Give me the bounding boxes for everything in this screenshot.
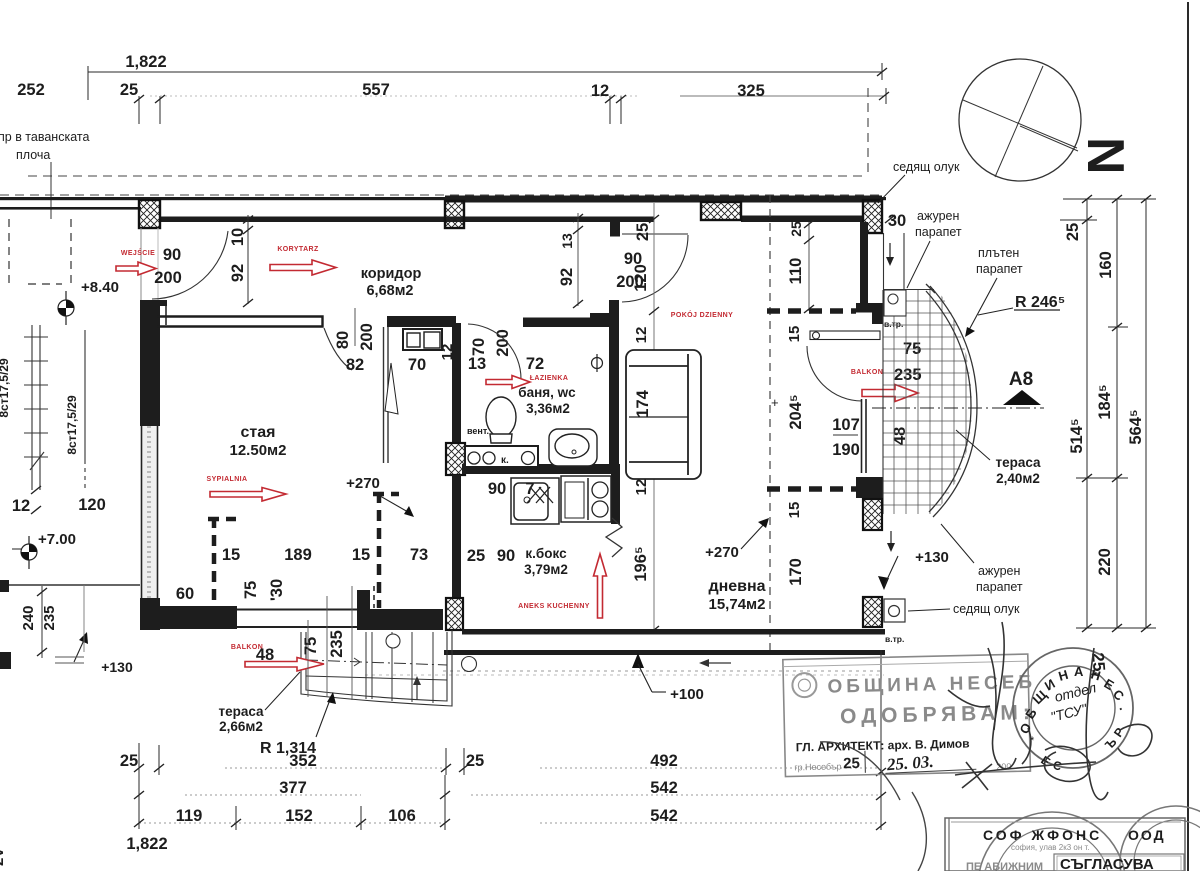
svg-text:25: 25: [120, 752, 138, 770]
svg-text:к.бокс: к.бокс: [525, 546, 567, 561]
svg-text:240: 240: [20, 605, 37, 630]
svg-text:коридор: коридор: [361, 266, 422, 282]
svg-text:120: 120: [78, 496, 106, 514]
svg-text:220: 220: [1096, 548, 1114, 576]
svg-text:200: 200: [154, 269, 182, 287]
svg-text:1,822: 1,822: [126, 835, 167, 853]
svg-text:ООД: ООД: [1128, 827, 1166, 843]
svg-text:160: 160: [1097, 251, 1115, 279]
svg-text:SYPIALNIA: SYPIALNIA: [207, 476, 248, 483]
svg-text:204⁵: 204⁵: [787, 394, 805, 429]
svg-text:8ст17,5/29: 8ст17,5/29: [0, 358, 11, 418]
svg-text:3,79м2: 3,79м2: [524, 562, 568, 577]
svg-text:90: 90: [488, 480, 506, 498]
svg-text:352: 352: [289, 752, 317, 770]
svg-text:15: 15: [352, 546, 370, 564]
svg-text:+: +: [771, 395, 779, 410]
svg-text:542: 542: [650, 779, 678, 797]
svg-text:13: 13: [559, 233, 575, 249]
svg-text:СЪГЛАСУВА: СЪГЛАСУВА: [1060, 856, 1154, 871]
svg-text:парапет: парапет: [915, 225, 962, 239]
svg-text:12: 12: [439, 344, 456, 361]
svg-text:+8.40: +8.40: [81, 279, 119, 296]
svg-text:ŁAZIENKA: ŁAZIENKA: [530, 375, 569, 382]
svg-text:120: 120: [632, 264, 650, 292]
svg-text:тераса: тераса: [995, 455, 1041, 470]
svg-text:557: 557: [362, 81, 390, 99]
svg-text:стая: стая: [241, 424, 276, 441]
svg-text:106: 106: [388, 807, 416, 825]
svg-text:542: 542: [650, 807, 678, 825]
svg-text:2,66м2: 2,66м2: [219, 719, 263, 734]
svg-text:тераса: тераса: [218, 704, 264, 719]
svg-text:73: 73: [410, 546, 428, 564]
svg-text:25: 25: [634, 223, 652, 241]
svg-text:парапет: парапет: [976, 580, 1023, 594]
svg-text:2,40м2: 2,40м2: [996, 471, 1040, 486]
svg-text:WEJŚCIE: WEJŚCIE: [121, 248, 155, 257]
svg-text:вент.: вент.: [467, 426, 489, 436]
svg-text:174: 174: [634, 389, 652, 417]
svg-text:377: 377: [279, 779, 307, 797]
svg-text:75: 75: [302, 637, 320, 655]
svg-text:252: 252: [17, 81, 45, 99]
svg-text:15: 15: [222, 546, 240, 564]
svg-text:R 246⁵: R 246⁵: [1015, 294, 1065, 311]
svg-text:СОФ ЖФОНС: СОФ ЖФОНС: [983, 827, 1102, 843]
svg-text:баня, wc: баня, wc: [518, 385, 576, 400]
svg-text:325: 325: [737, 82, 765, 100]
svg-text:70: 70: [408, 356, 426, 374]
svg-text:POKÓJ DZIENNY: POKÓJ DZIENNY: [671, 310, 733, 319]
svg-text:12.50м2: 12.50м2: [230, 442, 287, 459]
svg-text:А: А: [1074, 664, 1084, 679]
svg-text:196⁵: 196⁵: [632, 546, 650, 581]
svg-text:к.: к.: [501, 455, 509, 466]
svg-text:514⁵: 514⁵: [1068, 418, 1086, 453]
svg-text:25: 25: [843, 755, 860, 772]
svg-text:3,36м2: 3,36м2: [526, 401, 570, 416]
svg-text:189: 189: [284, 546, 312, 564]
svg-text:'30: '30: [268, 579, 286, 601]
svg-text:80: 80: [334, 331, 352, 349]
svg-text:дневна: дневна: [708, 578, 765, 595]
svg-text:25: 25: [467, 547, 485, 565]
svg-text:30: 30: [888, 212, 906, 230]
svg-text:ОДОБРЯВАМ:: ОДОБРЯВАМ:: [840, 701, 1035, 728]
svg-text:15: 15: [786, 502, 803, 519]
svg-text:92: 92: [229, 264, 247, 282]
svg-text:седящ олук: седящ олук: [893, 160, 960, 174]
svg-text:KORYTARZ: KORYTARZ: [277, 246, 319, 253]
svg-text:12: 12: [12, 497, 30, 515]
svg-text:107: 107: [832, 416, 860, 434]
svg-text:70: 70: [470, 338, 488, 356]
svg-text:+100: +100: [670, 686, 704, 703]
svg-text:плоча: плоча: [16, 148, 50, 162]
svg-text:в.тр.: в.тр.: [885, 634, 904, 644]
svg-text:119: 119: [176, 807, 203, 825]
svg-text:6,68м2: 6,68м2: [366, 283, 413, 299]
svg-text:8ст17,5/29: 8ст17,5/29: [65, 395, 79, 455]
svg-text:+270: +270: [705, 544, 739, 561]
svg-text:2V: 2V: [0, 848, 7, 866]
svg-text:плътен: плътен: [978, 246, 1019, 260]
svg-text:60: 60: [176, 585, 194, 603]
svg-text:12: 12: [633, 479, 650, 496]
svg-text:+270: +270: [346, 475, 380, 492]
svg-text:парапет: парапет: [976, 262, 1023, 276]
svg-text:пр в таванската: пр в таванската: [0, 130, 89, 144]
svg-text:564⁵: 564⁵: [1127, 409, 1145, 444]
svg-text:235: 235: [894, 366, 922, 384]
svg-text:72: 72: [526, 355, 544, 373]
svg-text:A8: A8: [1009, 369, 1033, 390]
svg-text:+130: +130: [101, 659, 133, 675]
svg-text:1,822: 1,822: [125, 53, 166, 71]
svg-text:+7.00: +7.00: [38, 531, 76, 548]
svg-text:BALKON: BALKON: [851, 369, 883, 376]
svg-text:ажурен: ажурен: [917, 209, 959, 223]
svg-text:25: 25: [788, 221, 804, 237]
svg-text:75: 75: [242, 581, 260, 599]
svg-text:седящ олук: седящ олук: [953, 602, 1020, 616]
svg-text:10: 10: [229, 228, 247, 246]
svg-text:25: 25: [1064, 223, 1082, 241]
svg-text:25: 25: [120, 81, 138, 99]
svg-text:90: 90: [163, 246, 181, 264]
svg-text:+130: +130: [915, 549, 949, 566]
svg-text:25. 03.: 25. 03.: [885, 752, 934, 775]
svg-text:492: 492: [650, 752, 678, 770]
svg-text:ПЕ АВИЖНИМ: ПЕ АВИЖНИМ: [966, 861, 1043, 871]
svg-text:25: 25: [466, 752, 484, 770]
svg-text:92: 92: [558, 268, 576, 286]
svg-text:235: 235: [41, 605, 58, 630]
svg-text:235: 235: [328, 630, 346, 658]
svg-text:170: 170: [787, 558, 805, 586]
svg-text:N: N: [1076, 137, 1134, 175]
svg-text:110: 110: [787, 258, 805, 285]
svg-text:200: 200: [358, 323, 376, 351]
svg-text:82: 82: [346, 356, 364, 374]
svg-text:13: 13: [468, 355, 486, 373]
svg-text:90: 90: [497, 547, 515, 565]
svg-text:гр.Несебър: гр.Несебър: [794, 761, 841, 772]
svg-text:184⁵: 184⁵: [1096, 384, 1114, 419]
svg-text:190: 190: [832, 441, 860, 459]
svg-text:ажурен: ажурен: [978, 564, 1020, 578]
svg-text:152: 152: [285, 807, 313, 825]
svg-text:ANEKS KUCHENNY: ANEKS KUCHENNY: [518, 603, 590, 610]
svg-text:12: 12: [591, 82, 609, 100]
svg-text:софия, улав 2к3 он т.: софия, улав 2к3 он т.: [1011, 843, 1090, 852]
svg-text:12: 12: [633, 327, 650, 344]
svg-text:15: 15: [786, 326, 803, 343]
svg-text:15,74м2: 15,74м2: [709, 596, 766, 613]
